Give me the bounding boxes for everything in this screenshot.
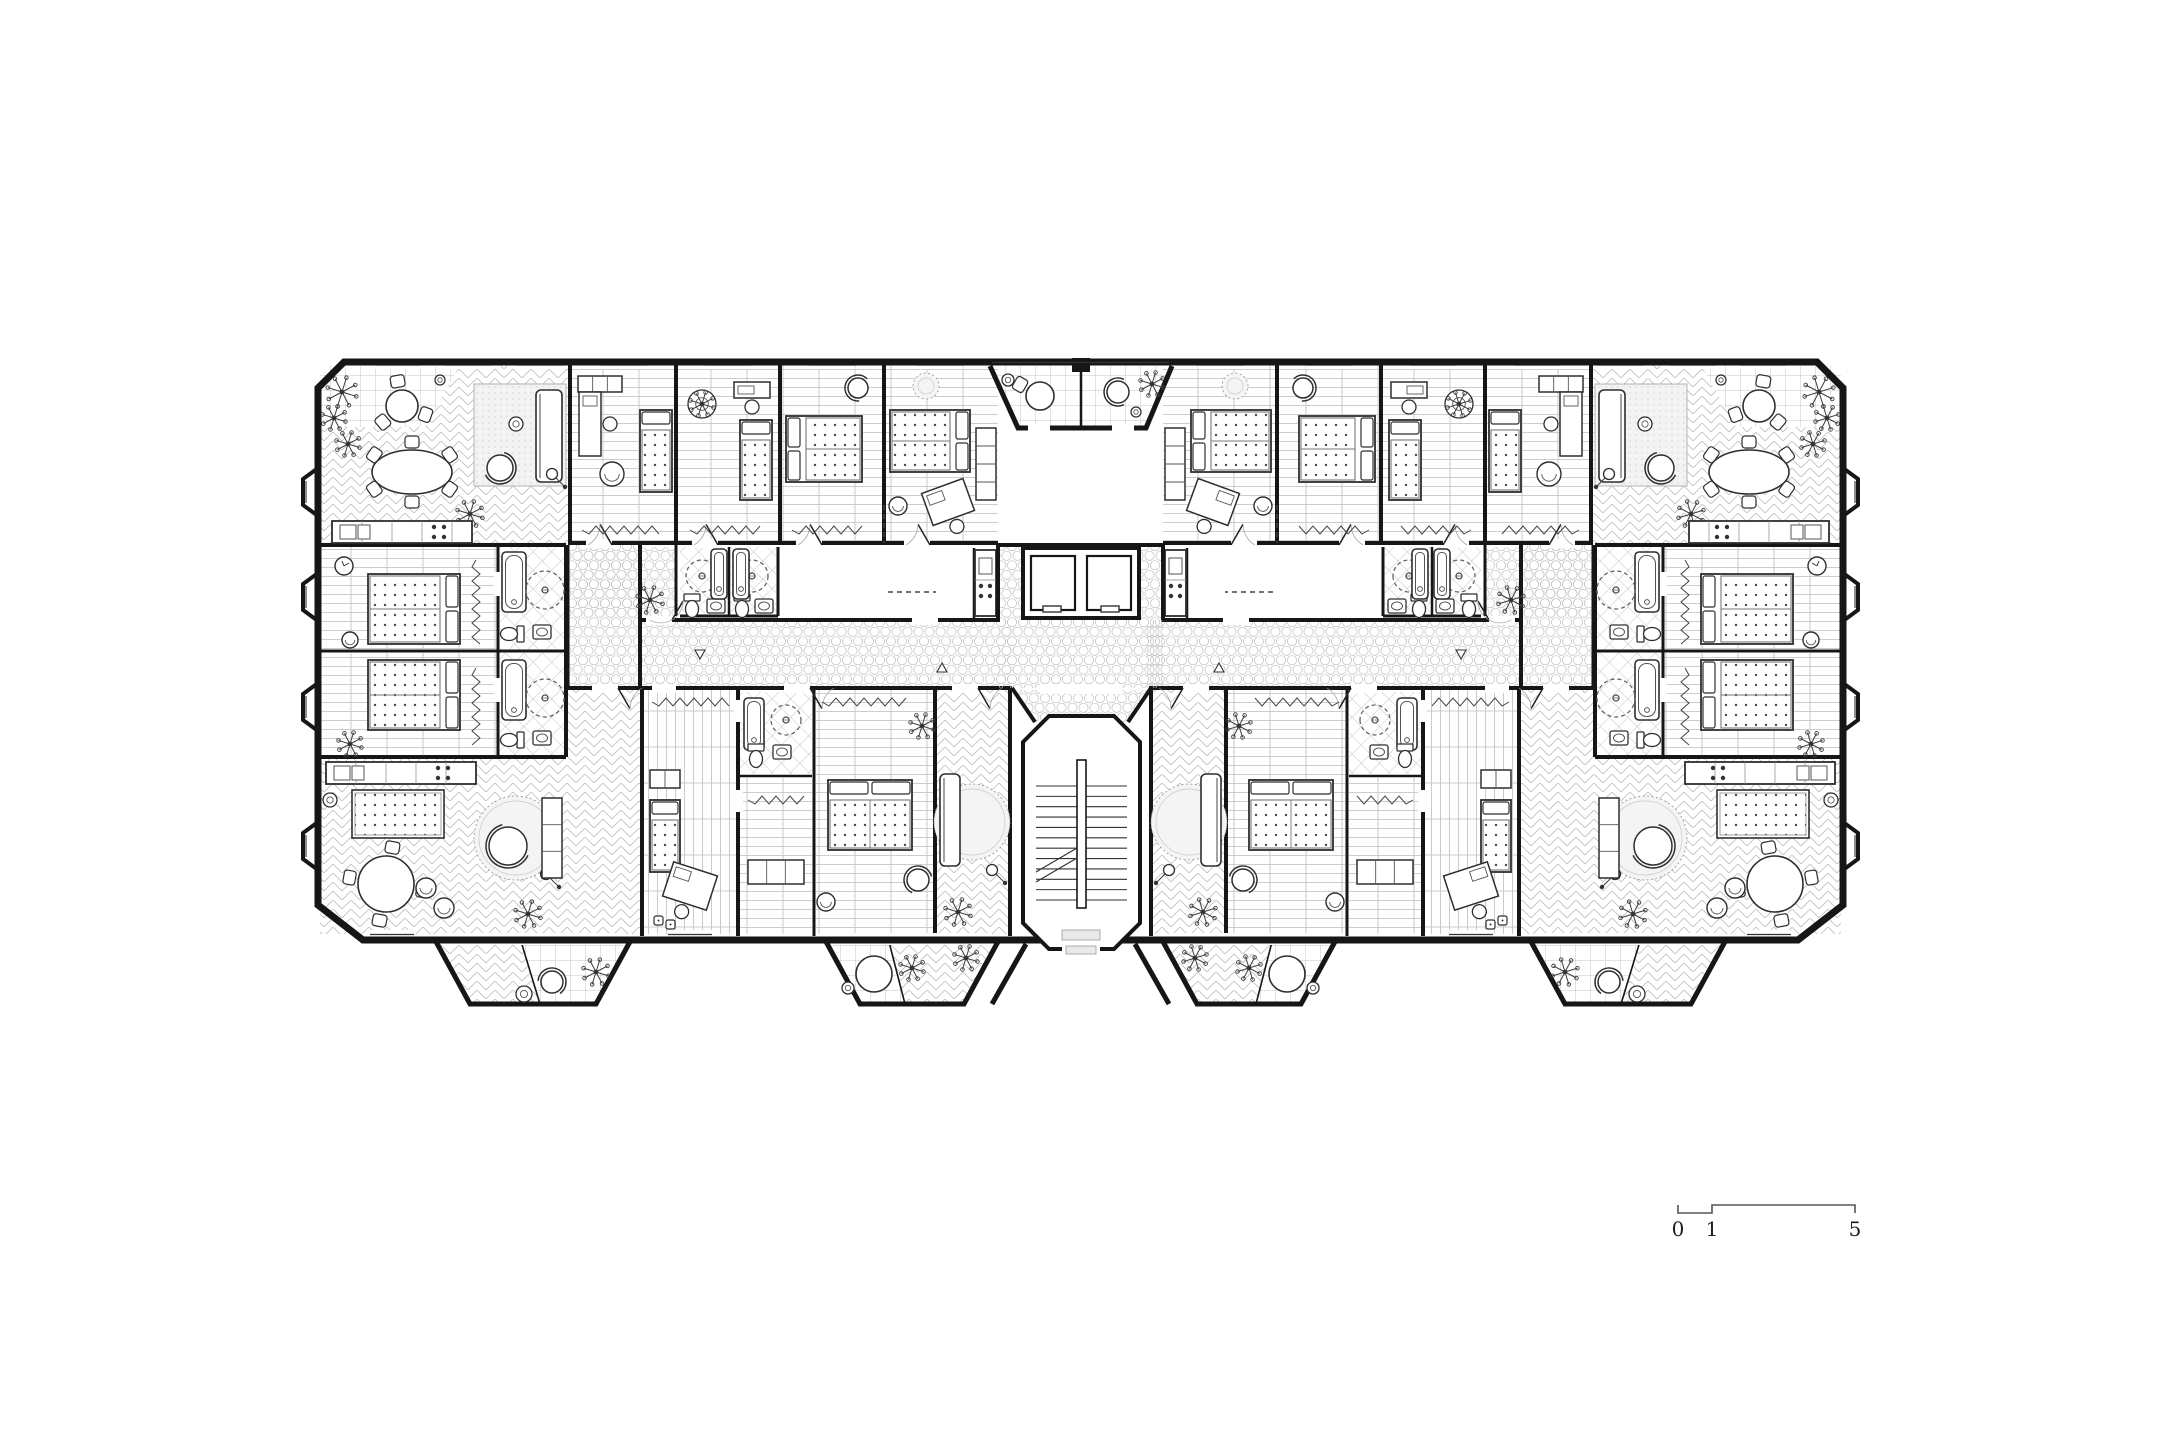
bathtub-symbol: [1635, 552, 1659, 612]
kitchen-counter-symbol: [975, 550, 996, 616]
plan-drawing: [303, 355, 1858, 1004]
bed-symbol: [1299, 416, 1375, 482]
kitchen-counter-symbol: [1165, 550, 1186, 616]
entry-court-left: [992, 944, 1026, 1004]
wc-part: [1637, 732, 1661, 748]
round-rug-symbol: [913, 373, 939, 399]
left-wing: [303, 355, 1014, 1004]
sofa-symbol: [1201, 774, 1221, 866]
shelf-unit-symbol: [542, 798, 562, 878]
wc-part: [748, 744, 764, 768]
bed-symbol: [828, 780, 912, 850]
corridor: [1147, 620, 1521, 688]
planter-pot-symbol: [323, 793, 337, 807]
toilet-symbol: [1637, 732, 1661, 748]
round-table-symbol: [856, 956, 892, 992]
clock-symbol: [1808, 557, 1826, 575]
sofa-symbol: [536, 390, 562, 482]
sink-symbol: [755, 599, 773, 613]
kitchen-counter-symbol: [326, 762, 476, 784]
planter-pot-symbol: [516, 986, 532, 1002]
stool-symbol: [1803, 632, 1819, 648]
chair: [405, 496, 419, 508]
chair: [342, 870, 356, 886]
planter-pot-symbol: [1307, 982, 1319, 994]
shelf-unit-symbol: [1599, 798, 1619, 878]
toilet-symbol: [684, 594, 700, 618]
threshold-symbol: [1066, 946, 1096, 954]
chair: [1755, 374, 1771, 388]
wc-part: [1637, 626, 1661, 642]
toilet-symbol: [1637, 626, 1661, 642]
corridor-mid: [998, 620, 1163, 688]
hall-column: [1521, 545, 1593, 688]
chair: [1761, 840, 1777, 854]
stool-symbol: [1254, 497, 1272, 515]
toilet-symbol: [1397, 744, 1413, 768]
sink-symbol: [1610, 731, 1628, 745]
stool-symbol: [889, 497, 907, 515]
sink-symbol: [1610, 625, 1628, 639]
stool-symbol: [1725, 878, 1745, 898]
chair: [1742, 496, 1756, 508]
wc-part: [501, 626, 525, 642]
planter-pot-symbol: [1629, 986, 1645, 1002]
stairwell: [1023, 716, 1140, 949]
planter-pot-symbol: [842, 982, 854, 994]
bathtub-symbol: [502, 660, 526, 720]
bathtub-symbol: [733, 549, 749, 599]
kitchen-counter-symbol: [1689, 521, 1829, 543]
planter-pot-symbol: [1638, 417, 1652, 431]
stool-symbol: [342, 632, 358, 648]
hall-column: [568, 545, 640, 688]
shelf-unit-symbol: [578, 376, 622, 392]
bathtub-symbol: [1412, 549, 1428, 599]
bathtub-symbol: [502, 552, 526, 612]
wc-part: [501, 732, 525, 748]
bed-symbol: [1489, 410, 1521, 492]
planter-pot-symbol: [1824, 793, 1838, 807]
shelf-unit-symbol: [1481, 770, 1511, 788]
chair: [390, 374, 406, 388]
wc-part: [684, 594, 700, 618]
bed-symbol: [1191, 410, 1271, 472]
sink-symbol: [533, 625, 551, 639]
planter-pot-symbol: [1716, 375, 1726, 385]
kitchen-counter-symbol: [332, 521, 472, 543]
stool-symbol: [600, 462, 624, 486]
chair: [384, 840, 400, 854]
scale-label-0: 0: [1672, 1217, 1685, 1241]
page: { "title_hint": "residential floor plan …: [0, 0, 2160, 1440]
stool-symbol: [1537, 462, 1561, 486]
bathtub-symbol: [711, 549, 727, 599]
bed-symbol: [640, 410, 672, 492]
kitchen-counter-symbol: [1685, 762, 1835, 784]
toilet-symbol: [501, 732, 525, 748]
chair: [1773, 913, 1789, 927]
stool-symbol: [1326, 893, 1344, 911]
bathtub-symbol: [1635, 660, 1659, 720]
toilet-symbol: [748, 744, 764, 768]
toilet-symbol: [1461, 594, 1477, 618]
bed-symbol: [1389, 420, 1421, 500]
stool-symbol: [416, 878, 436, 898]
bed-symbol: [368, 660, 460, 730]
chair: [372, 913, 388, 927]
stool-symbol: [434, 898, 454, 918]
elevator: [1023, 548, 1139, 618]
planter-pot-symbol: [435, 375, 445, 385]
bathtub-symbol: [1397, 698, 1417, 750]
sink-symbol: [1436, 599, 1454, 613]
bed-symbol: [1481, 800, 1511, 872]
planter-pot-symbol: [1131, 407, 1141, 417]
stool-symbol: [1707, 898, 1727, 918]
bed-symbol: [368, 574, 460, 644]
bed-symbol: [1249, 780, 1333, 850]
wc-part: [1397, 744, 1413, 768]
shelf-unit-symbol: [650, 770, 680, 788]
bathtub-symbol: [1434, 549, 1450, 599]
sofa-symbol: [940, 774, 960, 866]
bed-symbol: [650, 800, 680, 872]
bed-symbol: [1701, 660, 1793, 730]
planter-pot-symbol: [1002, 374, 1014, 386]
corridor: [640, 620, 1014, 688]
clock-symbol: [335, 557, 353, 575]
sink-symbol: [773, 745, 791, 759]
sink-symbol: [533, 731, 551, 745]
chair: [1742, 436, 1756, 448]
playpen-symbol: [352, 790, 444, 838]
threshold-symbol: [1062, 930, 1100, 940]
shelf-unit-symbol: [976, 428, 996, 500]
shelf-unit-symbol: [748, 860, 804, 884]
bathtub-symbol: [744, 698, 764, 750]
playpen-symbol: [1717, 790, 1809, 838]
entry-court-right: [1135, 944, 1169, 1004]
right-wing: [1147, 355, 1858, 1004]
bed-symbol: [890, 410, 970, 472]
round-table-symbol: [1269, 956, 1305, 992]
scale-bar: 0 1 5: [1672, 1205, 1862, 1241]
sofa-symbol: [1599, 390, 1625, 482]
toilet-symbol: [501, 626, 525, 642]
shelf-unit-symbol: [1165, 428, 1185, 500]
sink-symbol: [1370, 745, 1388, 759]
sink-symbol: [1388, 599, 1406, 613]
planter-pot-symbol: [509, 417, 523, 431]
scale-label-1: 1: [1706, 1217, 1719, 1241]
bed-symbol: [786, 416, 862, 482]
bed-symbol: [740, 420, 772, 500]
chair: [1804, 870, 1818, 886]
round-rug-symbol: [1222, 373, 1248, 399]
bed-symbol: [1701, 574, 1793, 644]
scale-label-5: 5: [1849, 1217, 1862, 1241]
shelf-unit-symbol: [1357, 860, 1413, 884]
wc-part: [1461, 594, 1477, 618]
chair: [405, 436, 419, 448]
floor-plan: 0 1 5: [0, 0, 2160, 1440]
stool-symbol: [817, 893, 835, 911]
sink-symbol: [707, 599, 725, 613]
shelf-unit-symbol: [1539, 376, 1583, 392]
